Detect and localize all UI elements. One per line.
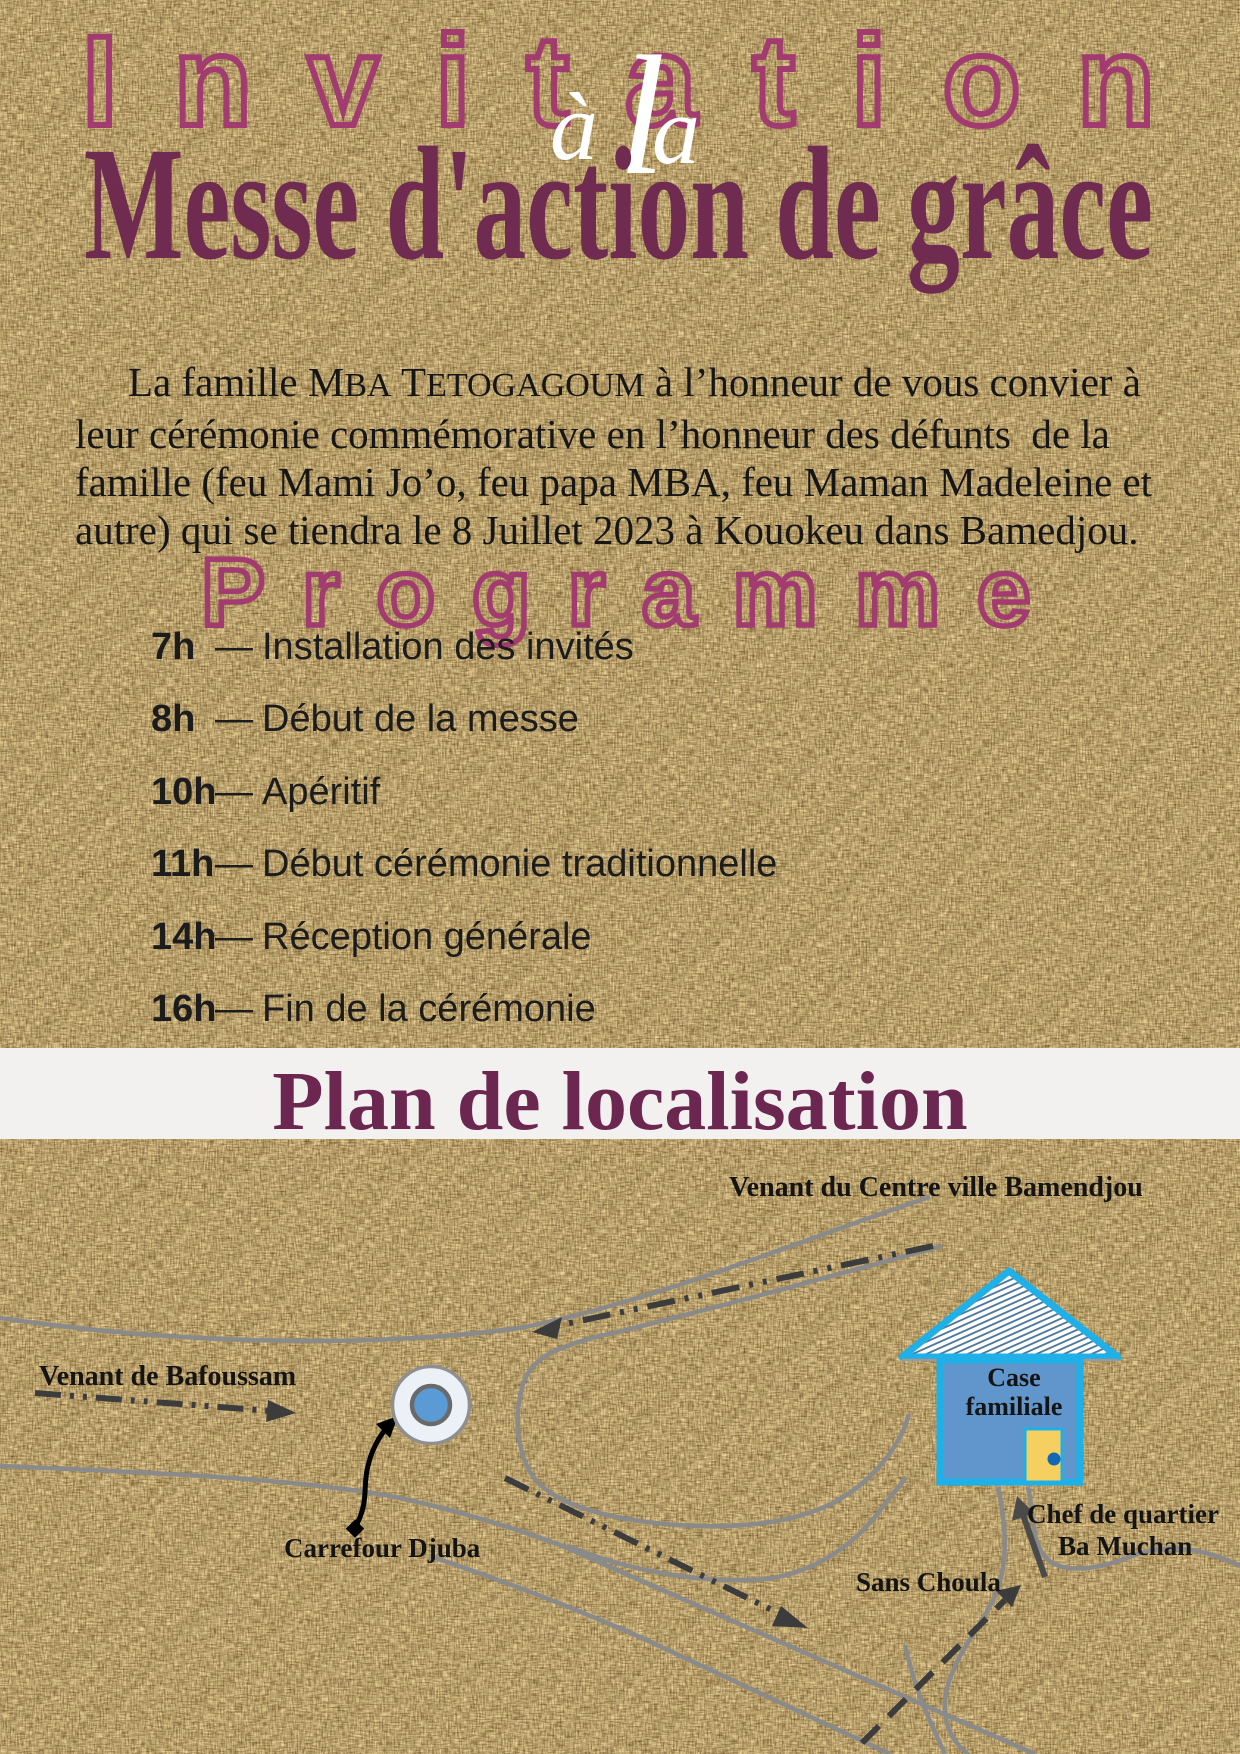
svg-text:Ba Muchan: Ba Muchan bbox=[1058, 1531, 1192, 1561]
svg-text:familiale: familiale bbox=[966, 1392, 1063, 1421]
svg-text:Venant du Centre ville Bamendj: Venant du Centre ville Bamendjou bbox=[729, 1172, 1143, 1203]
svg-text:Venant de Bafoussam: Venant de Bafoussam bbox=[39, 1361, 296, 1392]
svg-text:Carrefour Djuba: Carrefour Djuba bbox=[284, 1533, 481, 1563]
svg-text:Chef de quartier: Chef de quartier bbox=[1027, 1499, 1219, 1529]
svg-text:Case: Case bbox=[987, 1363, 1040, 1392]
svg-text:Sans Choula: Sans Choula bbox=[856, 1567, 1001, 1597]
